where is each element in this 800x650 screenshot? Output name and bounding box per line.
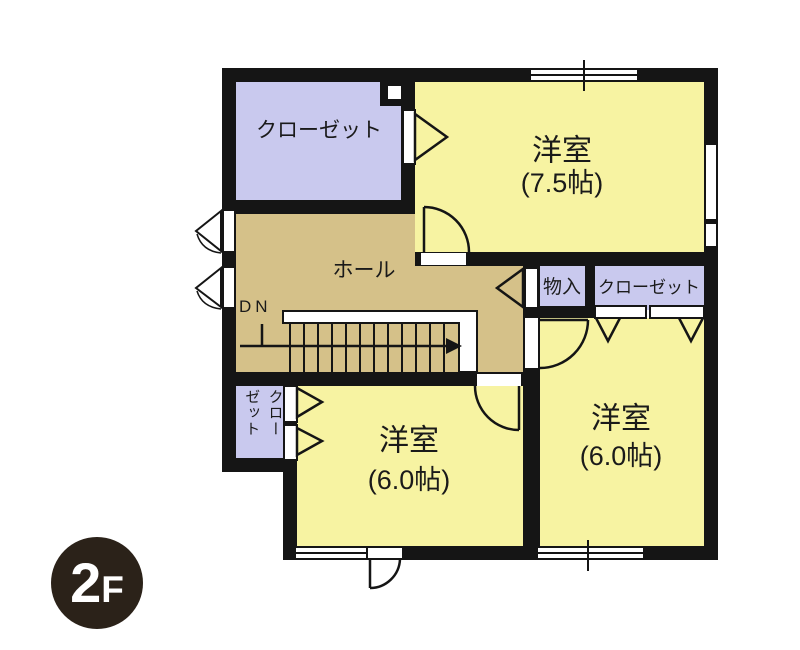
label-closet-right: クローゼット — [598, 279, 700, 297]
label-closet-small-line2: ゼット — [243, 389, 260, 437]
casement-window-left-1 — [196, 210, 235, 253]
label-stairs-down: DN — [239, 297, 272, 317]
label-western-room-3: 洋室 — [591, 403, 651, 435]
window-right-wall — [705, 144, 717, 247]
label-closet-top-left: クローゼット — [256, 120, 382, 142]
label-closet-small-line1: クロー — [267, 389, 284, 437]
wall-segment — [222, 200, 415, 214]
post-notch — [388, 86, 401, 99]
area-western-room-2: (6.0帖) — [368, 466, 451, 494]
label-closet-small: クローゼット — [240, 389, 287, 459]
floor-badge-suffix: F — [101, 569, 124, 611]
label-hall: ホール — [333, 260, 396, 282]
label-storage: 物入 — [543, 278, 581, 298]
floor-badge-number: 2 — [70, 537, 101, 629]
sliding-window-bottom-room2 — [295, 547, 368, 559]
label-western-room-2: 洋室 — [379, 425, 439, 457]
area-western-room-3: (6.0帖) — [580, 442, 663, 470]
casement-window-left-2 — [196, 267, 235, 309]
wall-segment — [585, 266, 595, 310]
floor-badge: 2F — [51, 537, 143, 629]
wall-segment — [704, 68, 718, 560]
balcony-door-bottom — [367, 547, 403, 588]
label-western-room-1: 洋室 — [532, 135, 592, 167]
floor-plan: クローゼット 洋室 (7.5帖) ホール DN 物入 クローゼット クローゼット… — [0, 0, 800, 650]
wall-segment — [222, 68, 718, 82]
area-western-room-1: (7.5帖) — [521, 169, 604, 197]
